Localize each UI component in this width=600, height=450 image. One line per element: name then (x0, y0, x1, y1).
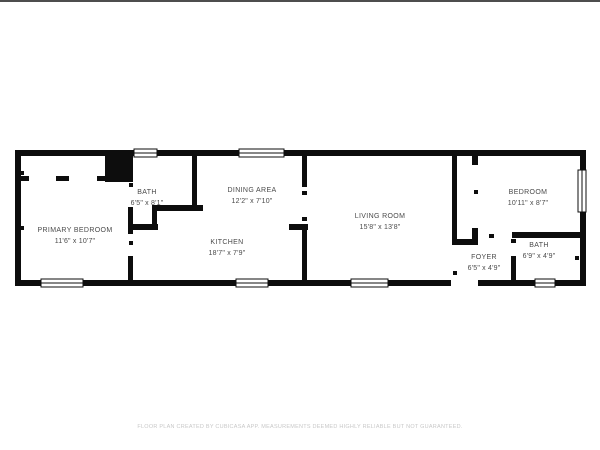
room-dimensions: 10'11" x 8'7" (508, 198, 548, 209)
room-name: FOYER (468, 252, 501, 263)
room-name: PRIMARY BEDROOM (37, 225, 112, 236)
room-dimensions: 11'6" x 10'7" (37, 236, 112, 247)
disclaimer-text: FLOOR PLAN CREATED BY CUBICASA APP. MEAS… (137, 424, 462, 430)
room-name: LIVING ROOM (355, 211, 406, 222)
room-name: KITCHEN (209, 237, 246, 248)
room-dimensions: 6'5" x 8'1" (131, 198, 164, 209)
room-name: BATH (523, 240, 556, 251)
room-label-living-room: LIVING ROOM 15'8" x 13'8" (355, 211, 406, 233)
room-dimensions: 6'5" x 4'9" (468, 263, 501, 274)
room-dimensions: 6'9" x 4'9" (523, 251, 556, 262)
floorplan-image: PRIMARY BEDROOM 11'6" x 10'7" BATH 6'5" … (0, 0, 600, 450)
room-dimensions: 18'7" x 7'9" (209, 248, 246, 259)
room-label-kitchen: KITCHEN 18'7" x 7'9" (209, 237, 246, 259)
room-label-bath-right: BATH 6'9" x 4'9" (523, 240, 556, 262)
room-label-bedroom: BEDROOM 10'11" x 8'7" (508, 187, 548, 209)
room-name: DINING AREA (228, 185, 277, 196)
room-name: BATH (131, 187, 164, 198)
room-dimensions: 12'2" x 7'10" (228, 196, 277, 207)
room-label-primary-bedroom: PRIMARY BEDROOM 11'6" x 10'7" (37, 225, 112, 247)
room-dimensions: 15'8" x 13'8" (355, 222, 406, 233)
room-label-dining-area: DINING AREA 12'2" x 7'10" (228, 185, 277, 207)
room-label-foyer: FOYER 6'5" x 4'9" (468, 252, 501, 274)
room-label-bath-left: BATH 6'5" x 8'1" (131, 187, 164, 209)
room-name: BEDROOM (508, 187, 548, 198)
